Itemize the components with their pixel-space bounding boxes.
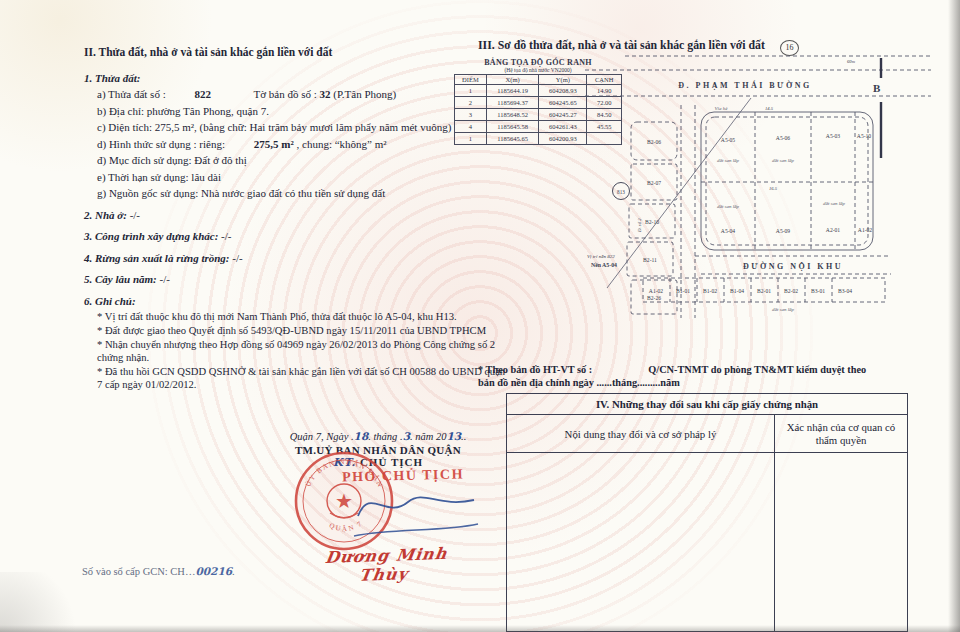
section2-title: II. Thửa đất, nhà ở và tài sản khác gắn …	[84, 44, 508, 61]
map-lot-label: B1-04	[730, 288, 744, 294]
sidewalk-label: Vỉa hè	[715, 106, 729, 111]
parcel-heading: 1. Thửa đất:	[84, 70, 508, 87]
cadastral-map: Đ. PHẠM THÁI BƯỜNG 60m B Đ. số 2 B2-06 B…	[555, 50, 935, 369]
note-item: * Nhận chuyển nhượng theo Hợp đồng số 04…	[97, 338, 508, 364]
section-construction: 3. Công trình xây dựng khác: -/-	[84, 228, 508, 245]
map-lot-label: B2-06	[647, 139, 661, 145]
page-edge-shadow	[0, 572, 90, 632]
callout-lot: Nền A5-04	[591, 262, 617, 268]
map-lot-label: B2-11	[643, 257, 657, 263]
fill-land-label: đất san lấp	[717, 204, 740, 209]
parcel-line-dd: đ) Mục đích sử dụng: Đất ở đô thị	[84, 152, 508, 169]
note-item: * Vị trí đất thuộc khu đô thị mới Nam Th…	[97, 310, 508, 323]
signature-date: Quận 7, Ngày .18. tháng .3. năm 2013..	[256, 430, 500, 442]
parcel-line-c: c) Diện tích: 275,5 m², (bằng chữ: Hai t…	[84, 119, 508, 136]
section-notes-heading: 6. Ghi chú:	[84, 293, 508, 310]
map-lot-label: B2-07	[647, 180, 661, 186]
map-lot-label: B2-01	[757, 288, 771, 294]
map-lot-label: B1-02	[703, 288, 717, 294]
street-width-label: 60m	[847, 59, 856, 64]
dimension-label: 16.5	[769, 186, 778, 191]
parcel-line-g: g) Nguồn gốc sử dụng: Nhà nước giao đất …	[84, 185, 508, 202]
changes-col-confirm: Xác nhận của cơ quan có thẩm quyền	[775, 415, 907, 453]
map-lot-label: B2-26	[647, 295, 661, 301]
section-perennial: 5. Cây lâu năm: -/-	[84, 271, 508, 288]
map-lot-label: A1-02	[858, 227, 872, 233]
parcel-line-b: b) Địa chỉ: phường Tân Phong, quận 7.	[84, 103, 508, 120]
handwritten-signature	[352, 478, 482, 552]
fill-land-label: đất san lấp	[772, 158, 795, 163]
street-name-top: Đ. PHẠM THÁI BƯỜNG	[678, 80, 811, 90]
map-lot-label: B3-04	[838, 288, 852, 294]
map-lot-label: A5-04	[721, 228, 735, 234]
map-lot-label: A5-03	[826, 133, 840, 139]
book-entry-number: Số vào sổ cấp GCN: CH…00216.	[82, 565, 235, 577]
street-name-left: Đ. số 2	[637, 218, 642, 233]
changes-table: IV. Những thay đổi sau khi cấp giấy chứn…	[506, 393, 908, 632]
signer-name: Dương Minh Thùy	[297, 543, 473, 587]
street-name-inner: ĐƯỜNG NỘI KHU	[743, 261, 843, 271]
changes-body-right	[775, 453, 907, 631]
map-lot-label: A5-06	[776, 135, 790, 141]
map-lot-label: A1-02	[649, 288, 663, 294]
changes-body-left	[507, 453, 775, 631]
map-lot-label: A5-09	[776, 228, 790, 234]
map-note: * Theo bản đồ HT-VT số :Q/CN-TNMT do phò…	[478, 364, 928, 389]
changes-col-content: Nội dung thay đổi và cơ sở pháp lý	[507, 415, 775, 453]
dimension-label: 14.5	[765, 106, 774, 111]
callout-location: Vị trí nền 822	[587, 254, 615, 259]
notes-list: * Vị trí đất thuộc khu đô thị mới Nam Th…	[84, 310, 508, 391]
parcel-line-e: e) Thời hạn sử dụng: lâu dài	[84, 169, 508, 186]
map-lot-label: A5-05	[721, 137, 735, 143]
changes-table-title: IV. Những thay đổi sau khi cấp giấy chứn…	[507, 394, 907, 415]
parcel-line-d: d) Hình thức sử dụng : riêng: 275,5 m² ,…	[84, 136, 508, 153]
marker-b: B	[873, 82, 881, 94]
map-lot-label: A5-10	[857, 133, 871, 139]
map-lot-label: B1-01	[676, 288, 690, 294]
fill-land-label: đất san lấp	[717, 158, 740, 163]
section-forest: 4. Rừng sản xuất là rừng trồng: -/-	[84, 250, 508, 267]
note-item: * Đã thu hồi GCN QSDD QSHNỞ & tài sản kh…	[97, 365, 508, 391]
map-lot-label: A2-01	[826, 227, 840, 233]
parcel-line-a: a) Thửa đất số : 822 Tờ bản đồ số : 32 (…	[84, 86, 508, 103]
fill-land-label: đất san lấp	[772, 307, 795, 312]
page-edge-shadow	[948, 0, 960, 632]
section-land-assets: II. Thửa đất, nhà ở và tài sản khác gắn …	[84, 44, 508, 392]
map-lot-label: B3-01	[811, 288, 825, 294]
note-item: * Đất được giao theo Quyết định số 5493/…	[97, 324, 508, 337]
map-point-badge: 813	[617, 189, 625, 195]
certificate-page: II. Thửa đất, nhà ở và tài sản khác gắn …	[0, 0, 960, 632]
section-house: 2. Nhà ở: -/-	[84, 207, 508, 224]
map-lot-label: B2-02	[784, 288, 798, 294]
fill-land-label: đất san lấp	[823, 201, 846, 206]
stamp-star-icon: ★	[335, 490, 353, 512]
